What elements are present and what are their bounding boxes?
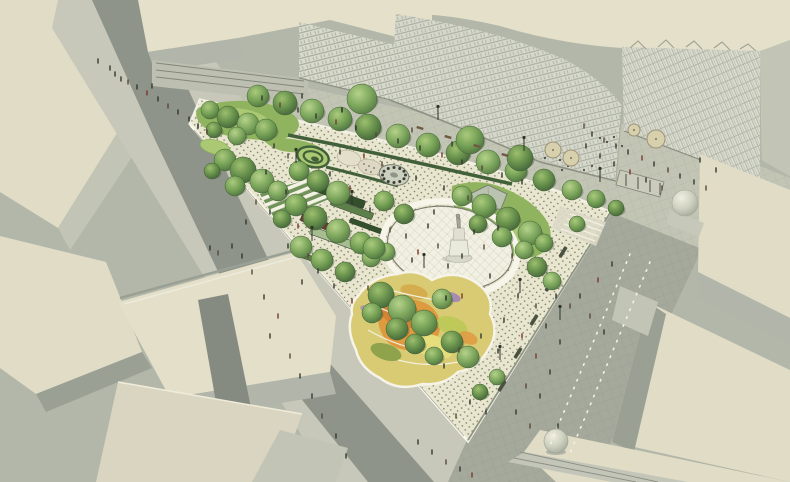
statue-base	[449, 240, 469, 256]
tree	[247, 85, 269, 107]
lamp-head	[598, 167, 601, 170]
tree	[562, 180, 582, 200]
fountain-jets	[363, 163, 365, 165]
tree	[608, 200, 624, 216]
tree	[307, 170, 329, 192]
tree	[328, 107, 352, 131]
statue-pedestal	[453, 228, 465, 240]
tree	[535, 234, 553, 252]
tree	[469, 215, 487, 233]
south-dome	[544, 429, 568, 453]
tree	[300, 99, 324, 123]
tree	[363, 237, 385, 259]
lamp-head	[518, 278, 521, 281]
12	[402, 170, 405, 173]
12	[393, 166, 396, 169]
tree	[228, 127, 246, 145]
cafe-umbrella-pole	[633, 129, 635, 131]
tree	[457, 346, 479, 368]
tree	[355, 114, 381, 140]
fountain-jets	[370, 171, 372, 173]
cafe-furniture	[583, 169, 585, 171]
12	[383, 177, 386, 180]
tree	[255, 119, 277, 141]
12	[381, 174, 384, 177]
12	[387, 180, 390, 183]
tree	[290, 236, 312, 258]
tree	[225, 176, 245, 196]
12	[402, 177, 405, 180]
cafe-umbrella-pole	[552, 149, 554, 151]
tree	[273, 210, 291, 228]
cafe-furniture	[561, 169, 563, 171]
tree	[347, 84, 377, 114]
lamp-head	[558, 305, 561, 308]
12	[398, 180, 401, 183]
wall-top-right	[760, 40, 790, 176]
tree	[515, 241, 533, 259]
tree	[335, 262, 355, 282]
cafe-furniture	[591, 165, 593, 167]
tree	[206, 122, 222, 138]
12	[383, 170, 386, 173]
tree	[543, 272, 561, 290]
tree	[201, 101, 219, 119]
tree	[452, 186, 472, 206]
tree	[326, 219, 350, 243]
cafe-furniture	[606, 141, 608, 143]
tree	[273, 91, 297, 115]
tree	[472, 384, 488, 400]
lamp-head	[522, 136, 525, 139]
plaza-rendering	[0, 0, 790, 482]
cafe-furniture	[559, 159, 561, 161]
lamp-head	[422, 253, 425, 256]
12	[387, 167, 390, 170]
tree	[456, 126, 484, 154]
fountain-jets	[365, 169, 367, 171]
aerial-view-canvas	[0, 0, 790, 482]
tree	[425, 347, 443, 365]
tree	[289, 161, 309, 181]
tree	[386, 124, 410, 148]
tree	[374, 191, 394, 211]
tree	[411, 310, 437, 336]
statue-figure-body	[457, 218, 461, 228]
tree	[405, 334, 425, 354]
tree	[386, 318, 408, 340]
cafe-umbrella-pole	[655, 138, 657, 140]
12	[398, 167, 401, 170]
tree	[268, 181, 288, 201]
tree	[394, 204, 414, 224]
sphere-dome-large	[672, 190, 698, 216]
fountain-jets	[368, 165, 370, 167]
tree	[587, 190, 605, 208]
12	[393, 181, 396, 184]
tree	[533, 169, 555, 191]
tree	[362, 303, 382, 323]
12	[404, 174, 407, 177]
statue-figure-head	[456, 214, 460, 218]
lamp-head	[310, 226, 313, 229]
cafe-umbrella-pole	[570, 157, 572, 159]
tree	[432, 289, 452, 309]
tree	[489, 369, 505, 385]
lamp-head	[350, 190, 353, 193]
lamp-head	[498, 345, 501, 348]
tree	[492, 227, 512, 247]
tree	[416, 133, 440, 157]
tree	[204, 163, 220, 179]
fountain-jets	[373, 167, 375, 169]
tree	[507, 145, 533, 171]
lamp-head	[436, 105, 439, 108]
cafe-furniture	[599, 137, 601, 139]
cafe-furniture	[544, 157, 546, 159]
tree	[326, 181, 350, 205]
cafe-furniture	[621, 145, 623, 147]
tree	[472, 194, 496, 218]
lamp-head	[294, 148, 297, 151]
tree	[303, 206, 327, 230]
cafe-furniture	[613, 136, 615, 138]
tree	[311, 249, 333, 271]
tree	[569, 216, 585, 232]
tree	[476, 150, 500, 174]
tree	[527, 257, 547, 277]
